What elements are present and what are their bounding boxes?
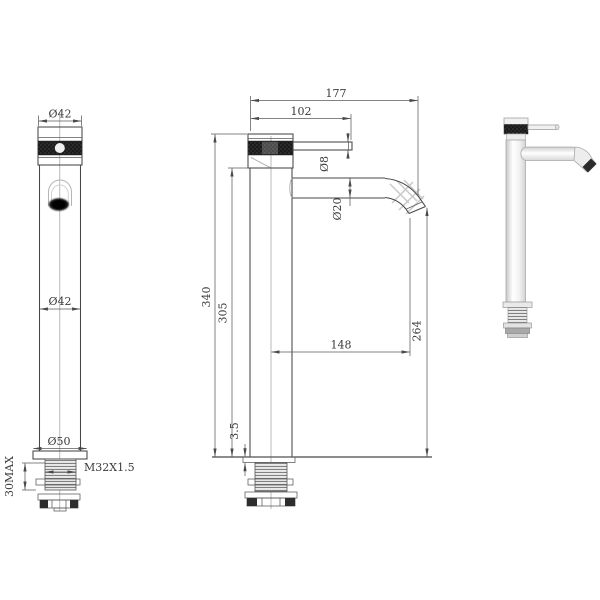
render-spout-arm bbox=[521, 147, 578, 161]
dim-thread-spec: M32X1.5 bbox=[84, 461, 135, 474]
dim-flange-thickness: 3.5 bbox=[228, 422, 241, 440]
front-handle-screw-cap bbox=[55, 143, 65, 153]
dim-spout-reach: 148 bbox=[331, 339, 352, 352]
dim-lever-projection: 102 bbox=[291, 105, 312, 118]
technical-drawing-page: Ø42 Ø42 Ø50 M32X1.5 30MAX bbox=[0, 0, 600, 600]
render-handle-neck bbox=[507, 134, 526, 140]
dim-lever-diameter: Ø8 bbox=[318, 156, 331, 172]
dim-total-height: 340 bbox=[200, 287, 213, 308]
render-washer bbox=[504, 323, 532, 328]
side-threaded-shank bbox=[255, 463, 287, 492]
dim-outlet-height: 264 bbox=[411, 321, 424, 342]
dim-front-base-diameter: Ø50 bbox=[47, 435, 70, 448]
dim-deck-thickness-max: 30MAX bbox=[3, 456, 16, 497]
dim-body-height: 305 bbox=[217, 303, 230, 324]
render-handle-cap bbox=[504, 118, 528, 125]
dim-spout-diameter: Ø20 bbox=[331, 197, 344, 220]
faucet-technical-drawing: Ø42 Ø42 Ø50 M32X1.5 30MAX bbox=[0, 0, 600, 600]
dim-front-top-diameter: Ø42 bbox=[48, 108, 71, 121]
render-base-flange bbox=[503, 302, 532, 308]
render-knurled-band bbox=[504, 125, 528, 135]
render-threaded-shank bbox=[508, 308, 527, 324]
dim-front-body-diameter: Ø42 bbox=[48, 295, 71, 308]
render-lever-rod bbox=[528, 125, 557, 130]
render-nut-band bbox=[506, 328, 530, 334]
render-body bbox=[506, 140, 526, 302]
render-lever-tip bbox=[556, 125, 560, 130]
dim-total-projection: 177 bbox=[326, 87, 347, 100]
render-nut bbox=[508, 334, 528, 338]
